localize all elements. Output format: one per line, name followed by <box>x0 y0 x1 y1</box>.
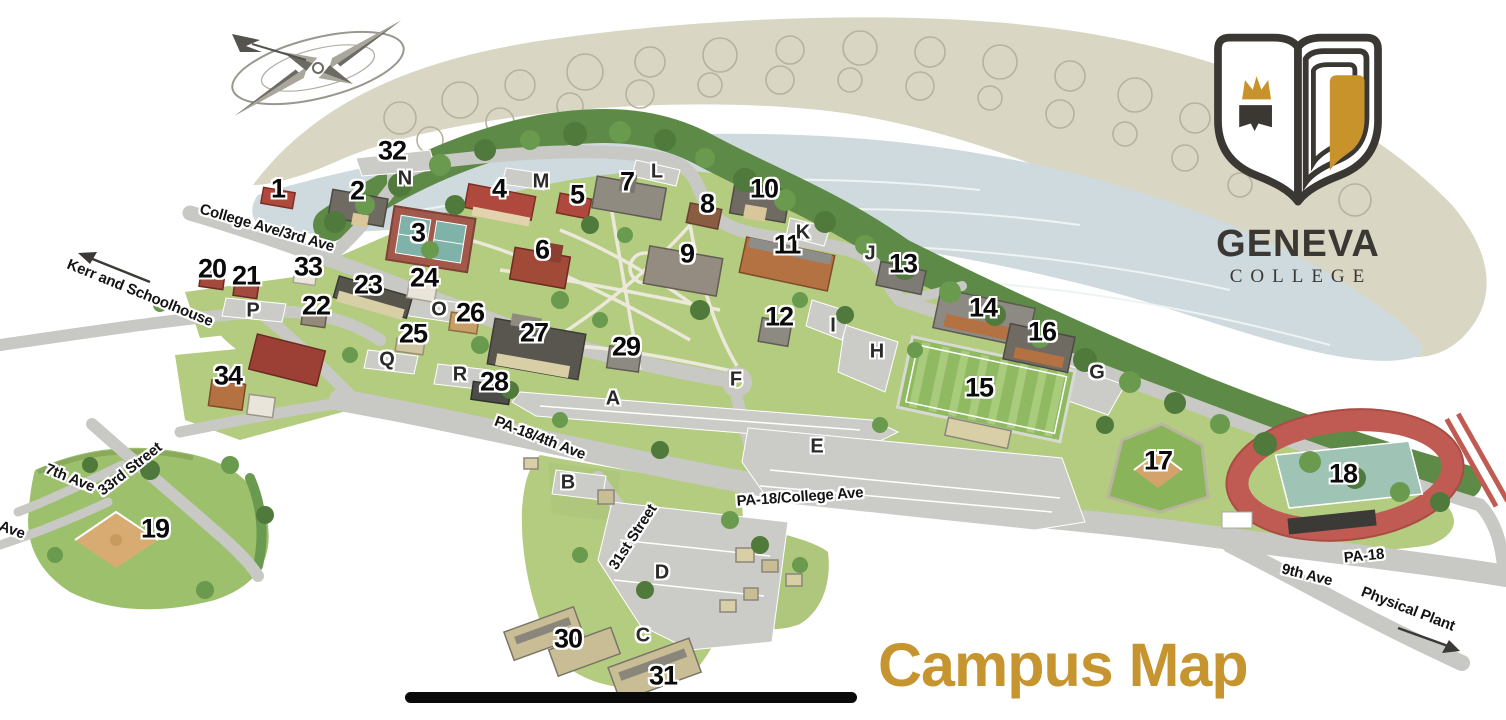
divider-bar <box>405 692 857 703</box>
logo-subtext: COLLEGE <box>1200 266 1396 288</box>
geneva-shield-icon <box>1203 28 1393 216</box>
roundabout <box>722 367 752 397</box>
page-title: Campus Map <box>878 630 1248 700</box>
geneva-college-logo: GENEVA COLLEGE <box>1200 28 1396 288</box>
kerr-arrow <box>78 252 150 282</box>
equipment-shed <box>1222 512 1252 528</box>
campus-map-page: 1234567891011121314151617181920212223242… <box>0 0 1506 720</box>
tennis-courts <box>386 206 475 272</box>
logo-wordmark: GENEVA <box>1200 225 1396 263</box>
